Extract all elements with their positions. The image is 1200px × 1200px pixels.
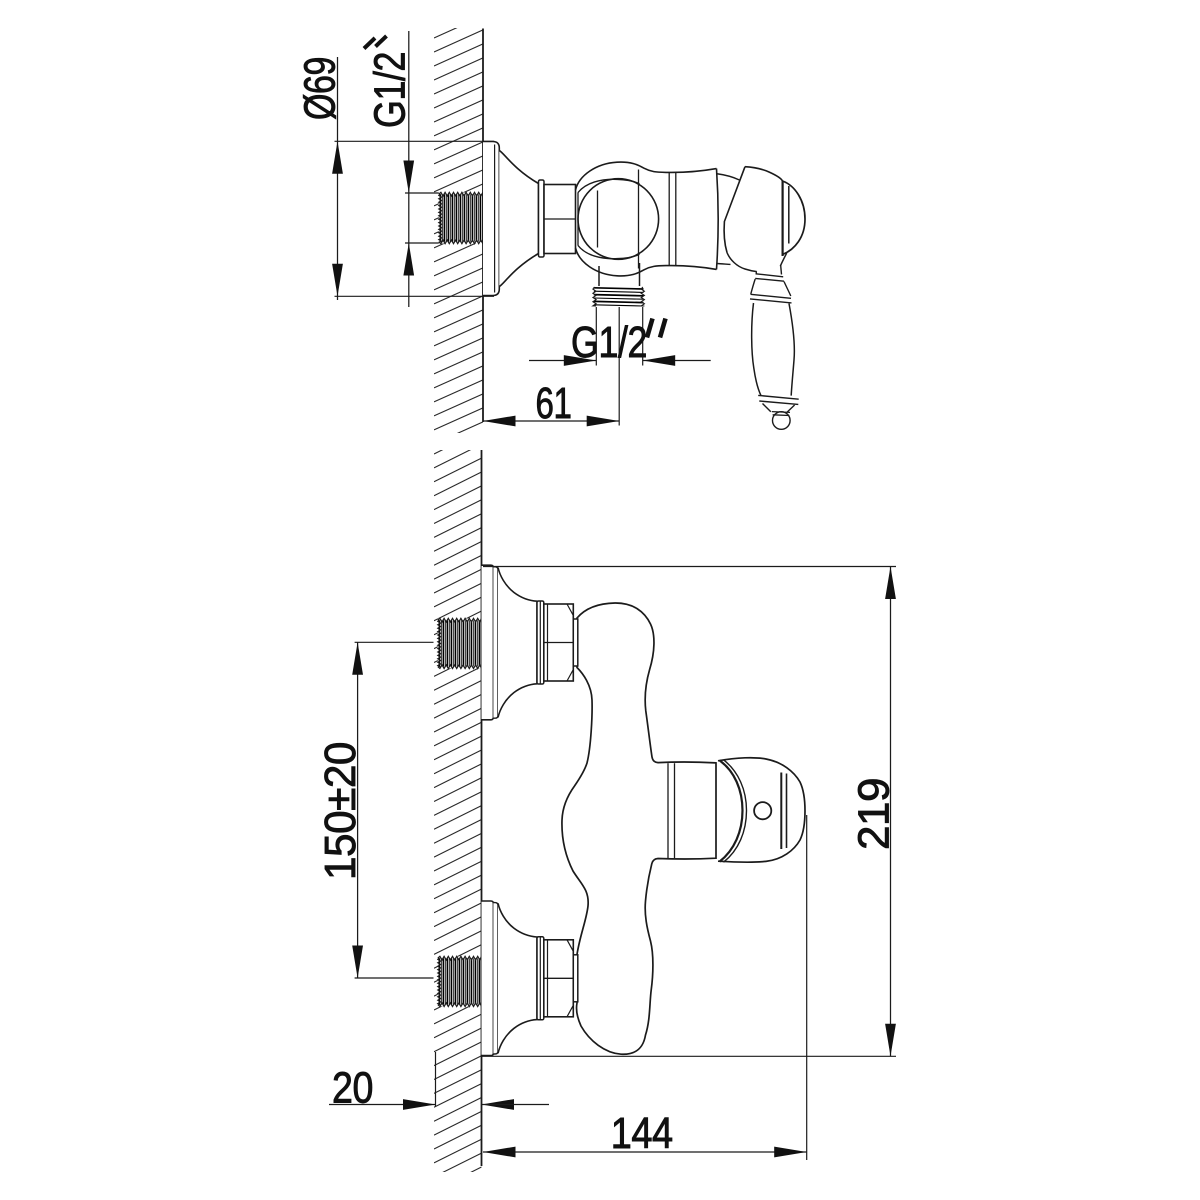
svg-text:61: 61 bbox=[536, 379, 572, 428]
svg-text:144: 144 bbox=[611, 1109, 673, 1158]
svg-text:Ø69: Ø69 bbox=[296, 57, 345, 120]
svg-text:G1/2: G1/2 bbox=[366, 52, 415, 128]
svg-text:150±20: 150±20 bbox=[316, 742, 365, 880]
svg-text:20: 20 bbox=[332, 1064, 373, 1113]
svg-text:G1/2: G1/2 bbox=[571, 318, 647, 367]
svg-text:219: 219 bbox=[850, 778, 899, 850]
